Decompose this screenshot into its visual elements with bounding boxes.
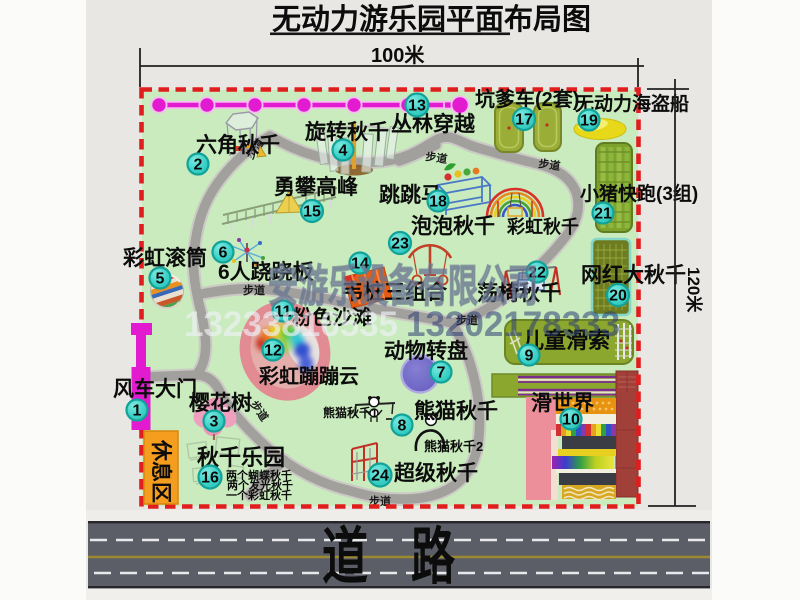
svg-text:熊猫秋千2: 熊猫秋千2 — [424, 439, 483, 454]
svg-text:彩虹滚筒: 彩虹滚筒 — [122, 246, 207, 270]
svg-text:15: 15 — [303, 204, 321, 221]
svg-text:100米: 100米 — [371, 44, 425, 67]
svg-text:路: 路 — [411, 523, 456, 592]
svg-text:丛林穿越: 丛林穿越 — [391, 112, 476, 136]
svg-text:3: 3 — [210, 414, 219, 431]
svg-text:5: 5 — [156, 271, 165, 288]
svg-text:熊猫秋千1: 熊猫秋千1 — [323, 405, 378, 420]
svg-text:休息区: 休息区 — [149, 439, 173, 503]
svg-text:风车大门: 风车大门 — [113, 377, 197, 401]
svg-text:23: 23 — [391, 236, 409, 253]
svg-text:10: 10 — [562, 412, 580, 429]
svg-text:20: 20 — [609, 288, 627, 305]
svg-text:120米: 120米 — [684, 267, 704, 313]
svg-text:一个彩虹秋千: 一个彩虹秋千 — [226, 488, 292, 502]
svg-text:1: 1 — [133, 403, 142, 420]
svg-text:13: 13 — [408, 98, 426, 115]
svg-text:泡泡秋千: 泡泡秋千 — [411, 214, 495, 238]
svg-text:道: 道 — [322, 523, 368, 592]
svg-text:彩虹蹦蹦云: 彩虹蹦蹦云 — [258, 365, 359, 388]
svg-text:超级秋千: 超级秋千 — [394, 461, 478, 485]
svg-text:24: 24 — [371, 468, 389, 485]
svg-text:勇攀高峰: 勇攀高峰 — [274, 175, 358, 199]
svg-text:无动力游乐园平面布局图: 无动力游乐园平面布局图 — [272, 3, 591, 36]
svg-text:2: 2 — [194, 157, 203, 174]
svg-text:17: 17 — [515, 112, 533, 129]
svg-text:19: 19 — [580, 113, 598, 130]
svg-text:13202178333: 13202178333 — [406, 305, 620, 344]
svg-text:步道: 步道 — [243, 283, 265, 297]
svg-text:熊猫秋千: 熊猫秋千 — [414, 399, 498, 423]
svg-text:12: 12 — [264, 343, 282, 360]
svg-text:21: 21 — [594, 206, 612, 223]
svg-text:8: 8 — [398, 418, 407, 435]
svg-text:18: 18 — [429, 194, 447, 211]
svg-text:六角秋千: 六角秋千 — [196, 133, 280, 157]
svg-text:6: 6 — [219, 245, 228, 262]
svg-text:彩虹秋千: 彩虹秋千 — [506, 216, 579, 237]
svg-text:网红大秋千: 网红大秋千 — [581, 263, 686, 287]
svg-text:安游乐设备有限公司: 安游乐设备有限公司 — [268, 262, 538, 311]
svg-text:7: 7 — [437, 365, 446, 382]
svg-text:13233816535: 13233816535 — [184, 305, 398, 344]
svg-text:4: 4 — [339, 143, 348, 160]
svg-text:16: 16 — [201, 470, 219, 487]
svg-text:小猪快跑(3组): 小猪快跑(3组) — [580, 182, 698, 205]
svg-text:9: 9 — [525, 348, 534, 365]
